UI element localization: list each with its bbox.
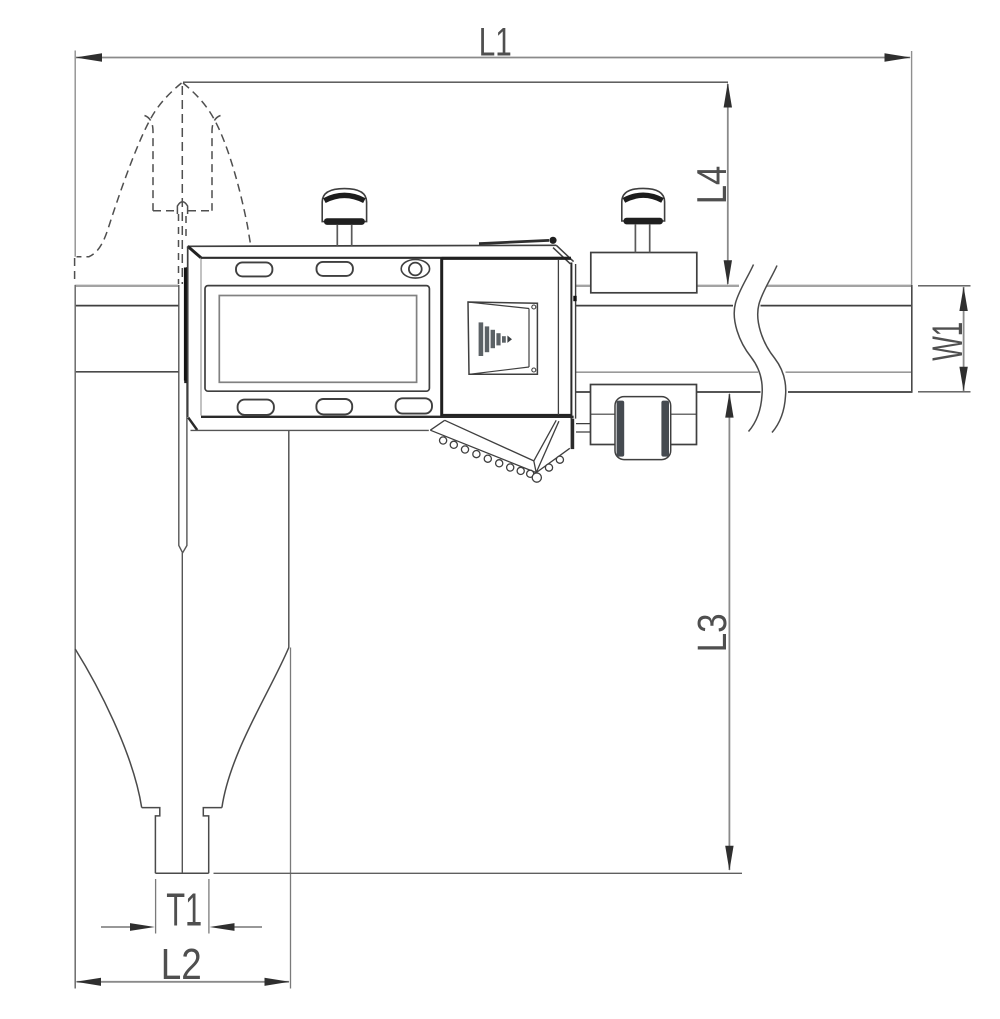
svg-text:L3: L3 [689, 613, 735, 652]
svg-text:W1: W1 [924, 322, 972, 361]
svg-text:T1: T1 [166, 883, 202, 935]
svg-text:L2: L2 [161, 940, 202, 989]
svg-text:L4: L4 [688, 166, 735, 205]
svg-text:L1: L1 [479, 20, 512, 64]
